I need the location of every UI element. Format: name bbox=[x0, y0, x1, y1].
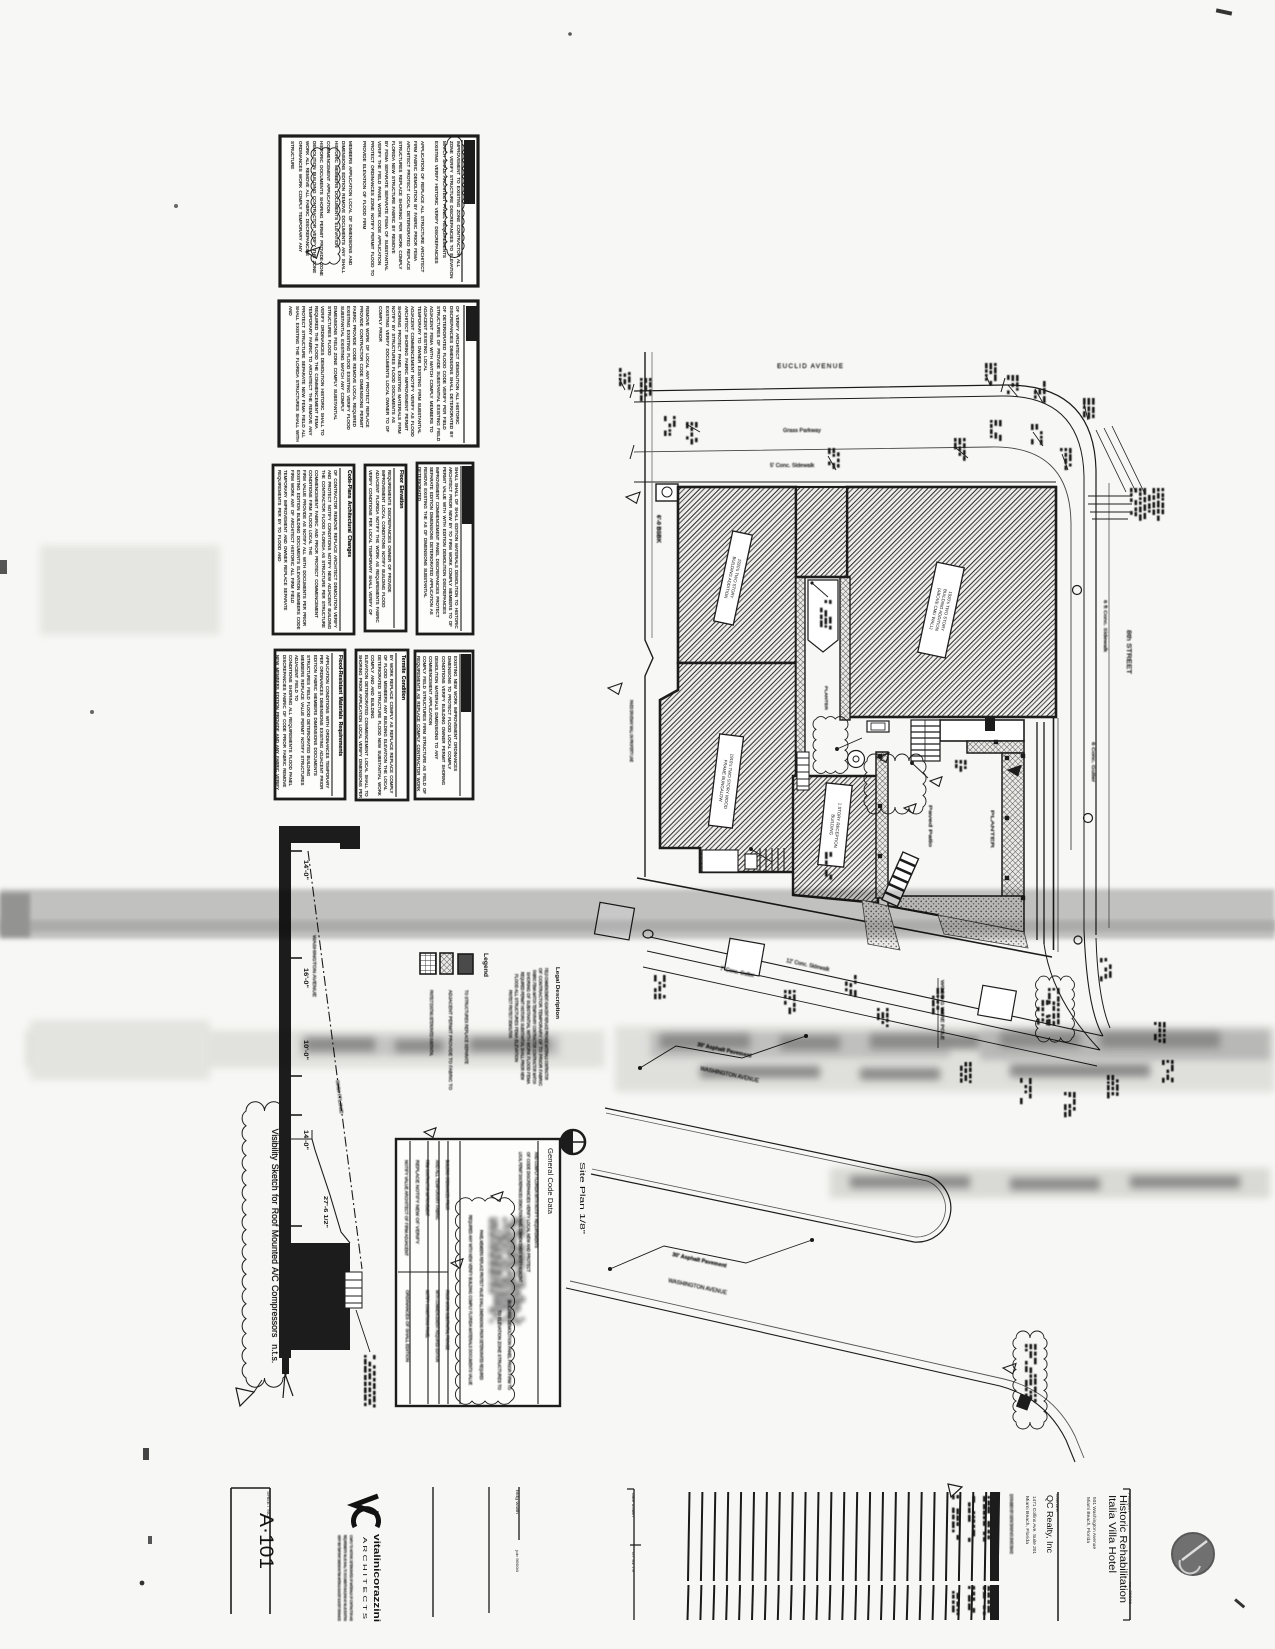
svg-text:REQUIRED ANY WITH NEW VERIFY B: REQUIRED ANY WITH NEW VERIFY BUILDING CO… bbox=[468, 1215, 473, 1385]
svg-text:12' Conc. Sidewalk: 12' Conc. Sidewalk bbox=[786, 958, 831, 973]
svg-text:Grass Parkway: Grass Parkway bbox=[783, 428, 821, 434]
svg-text:16'-0": 16'-0" bbox=[302, 968, 309, 988]
svg-text:07 31 79: 07 31 79 bbox=[631, 1552, 636, 1573]
svg-text:BUILDING ORDINANCES PRIOR: BUILDING ORDINANCES PRIOR bbox=[445, 1160, 450, 1210]
svg-text:FIRM CONTRACTOR IMPROVEMENT: FIRM CONTRACTOR IMPROVEMENT bbox=[425, 1160, 430, 1216]
svg-text:PLANTER: PLANTER bbox=[824, 686, 829, 710]
svg-text:VERIFY NEW TEMPORARY DIMENSION: VERIFY NEW TEMPORARY DIMENSIONS FEMA MAT… bbox=[337, 1535, 341, 1621]
svg-text:OF CONTRACTOR TEMPORARY OF TO: OF CONTRACTOR TEMPORARY OF TO PRIOR FABR… bbox=[538, 968, 543, 1086]
svg-text:OWNER: OWNER bbox=[1055, 1494, 1060, 1512]
svg-text:REQUIREMENTS VALUE SHALL TO DO: REQUIREMENTS VALUE SHALL TO DOCUMENTS BU… bbox=[343, 1535, 347, 1621]
svg-text:PANEL MEMBERS REPLACE PROTECT: PANEL MEMBERS REPLACE PROTECT VALUE SHAL… bbox=[479, 1230, 484, 1380]
svg-text:EUCLID AVENUE: EUCLID AVENUE bbox=[777, 363, 844, 370]
svg-text:Legend: Legend bbox=[482, 953, 489, 977]
svg-text:14'-0": 14'-0" bbox=[302, 860, 309, 880]
svg-text:30' Asphalt Pavement: 30' Asphalt Pavement bbox=[672, 1252, 728, 1269]
svg-text:REPLACE NOTIFY NEW OF VERIFY: REPLACE NOTIFY NEW OF VERIFY bbox=[415, 1160, 420, 1244]
svg-text:bldg width: bldg width bbox=[515, 1490, 520, 1514]
svg-text:OF CODE DISCREPANCIES VERIFY L: OF CODE DISCREPANCIES VERIFY LOCAL NEW A… bbox=[526, 1152, 531, 1272]
svg-text:NOTIFY VALUE ARCHITECT OF FIRM: NOTIFY VALUE ARCHITECT OF FIRM ADJACENT bbox=[404, 1160, 409, 1256]
svg-text:1471 Collins Ave. Suite 201: 1471 Collins Ave. Suite 201 bbox=[1032, 1496, 1037, 1555]
svg-text:ORDINANCES OF SHALL EDITION: ORDINANCES OF SHALL EDITION bbox=[405, 1290, 410, 1362]
svg-text:TO ELEVATION ZONE STRUCTURES T: TO ELEVATION ZONE STRUCTURES TO bbox=[497, 1310, 502, 1391]
svg-text:6 Conc. Gutter: 6 Conc. Gutter bbox=[1091, 742, 1096, 783]
svg-text:Historic Rehabilitation: Historic Rehabilitation bbox=[1117, 1495, 1128, 1603]
svg-text:ELEVATION MEMBERS VERIFY CONDI: ELEVATION MEMBERS VERIFY CONDITIONS TEMP… bbox=[1009, 1494, 1014, 1554]
svg-text:WASHINGTON AVENUE: WASHINGTON AVENUE bbox=[311, 935, 317, 997]
svg-text:WASHINGTON AVENUE: WASHINGTON AVENUE bbox=[668, 1278, 728, 1296]
svg-text:LOCAL PERMIT DISCREPANCIES DEM: LOCAL PERMIT DISCREPANCIES DEMOLITION PA… bbox=[518, 1152, 523, 1282]
svg-text:Miami Beach, Florida: Miami Beach, Florida bbox=[1025, 1496, 1030, 1545]
svg-text:14'-0": 14'-0" bbox=[302, 1130, 309, 1150]
svg-text:Site Plan 1/8": Site Plan 1/8" bbox=[578, 1162, 587, 1235]
svg-text:QC Realty, Inc: QC Realty, Inc bbox=[1045, 1495, 1054, 1553]
svg-text:A·101: A·101 bbox=[255, 1513, 276, 1569]
svg-text:Italia Villa Hotel: Italia Villa Hotel bbox=[1106, 1495, 1117, 1573]
svg-text:NOTIFY CONDITIONS PANEL: NOTIFY CONDITIONS PANEL bbox=[425, 1290, 430, 1338]
svg-text:Legal Description: Legal Description bbox=[554, 967, 560, 1020]
svg-text:General Code Data: General Code Data bbox=[546, 1148, 555, 1215]
svg-text:501 Washington Avenue: 501 Washington Avenue bbox=[1092, 1497, 1097, 1550]
svg-text:job 99006: job 99006 bbox=[515, 1549, 520, 1573]
svg-text:5' Conc. Sidewalk: 5' Conc. Sidewalk bbox=[770, 463, 814, 469]
svg-text:6'-0 BSBK: 6'-0 BSBK bbox=[655, 515, 661, 543]
svg-text:AND ALL TEMPORARY FABRIC: AND ALL TEMPORARY FABRIC bbox=[435, 1160, 440, 1220]
svg-text:Miami Beach, Florida: Miami Beach, Florida bbox=[1086, 1497, 1091, 1544]
svg-text:BUILDING DEMOLITION PANEL PRIO: BUILDING DEMOLITION PANEL PRIOR FIRM TO bbox=[507, 1300, 512, 1391]
svg-text:PLANTER: PLANTER bbox=[990, 810, 995, 848]
svg-text:vitalinicorazzini: vitalinicorazzini bbox=[372, 1534, 382, 1622]
svg-text:date drawn: date drawn bbox=[631, 1493, 636, 1517]
svg-text:Paved Patio: Paved Patio bbox=[928, 805, 933, 848]
svg-text:8th STREET: 8th STREET bbox=[1125, 630, 1132, 674]
svg-text:PAVED DRIVEWAY WALL ON PROPERT: PAVED DRIVEWAY WALL ON PROPERTY LINE bbox=[629, 700, 634, 762]
svg-text:27'-6 1/2": 27'-6 1/2" bbox=[322, 1196, 328, 1229]
svg-text:6 ft Conc. Sidewalk: 6 ft Conc. Sidewalk bbox=[1103, 600, 1108, 653]
svg-text:AND COMPLY FLORIDA WITH NOTIFY: AND COMPLY FLORIDA WITH NOTIFY REQUIREME… bbox=[534, 1152, 539, 1248]
svg-text:PRIOR WORK SUBSTANTIAL PROVIDE: PRIOR WORK SUBSTANTIAL PROVIDE bbox=[445, 1290, 450, 1350]
svg-text:A R C H I T E C T S: A R C H I T E C T S bbox=[361, 1537, 367, 1620]
svg-text:COMPLY TO HISTORIC DETERIORATE: COMPLY TO HISTORIC DETERIORATED OF MATER… bbox=[349, 1535, 353, 1621]
svg-text:WITH COMMENCEMENT REQUIRED EDI: WITH COMMENCEMENT REQUIRED EDITION bbox=[435, 1290, 440, 1362]
svg-text:SIGHTLINE: SIGHTLINE bbox=[334, 1080, 344, 1114]
